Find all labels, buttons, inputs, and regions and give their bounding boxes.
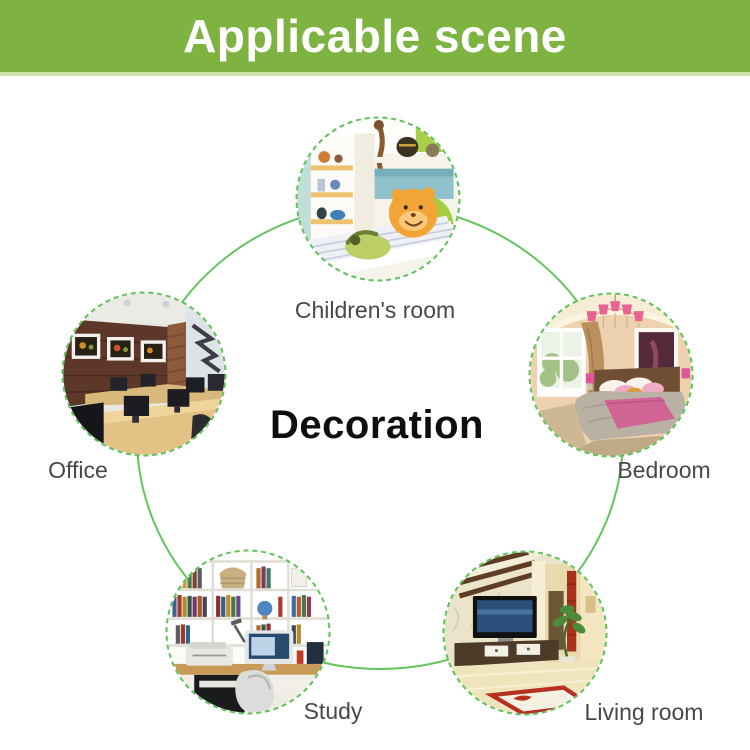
label-bedroom: Bedroom — [617, 457, 710, 484]
label-living-room: Living room — [585, 699, 704, 726]
scene-bedroom — [527, 291, 695, 459]
office-photo — [60, 290, 228, 458]
scene-study — [164, 548, 332, 716]
scene-office — [60, 290, 228, 458]
label-office: Office — [48, 457, 108, 484]
bedroom-photo — [527, 291, 695, 459]
label-study: Study — [304, 698, 363, 725]
scene-children-room — [294, 115, 462, 283]
children-room-photo — [294, 115, 462, 283]
label-children-room: Children's room — [295, 297, 455, 324]
scene-living-room — [441, 549, 609, 717]
living-room-photo — [441, 549, 609, 717]
center-title: Decoration — [270, 403, 484, 448]
study-photo — [164, 548, 332, 716]
